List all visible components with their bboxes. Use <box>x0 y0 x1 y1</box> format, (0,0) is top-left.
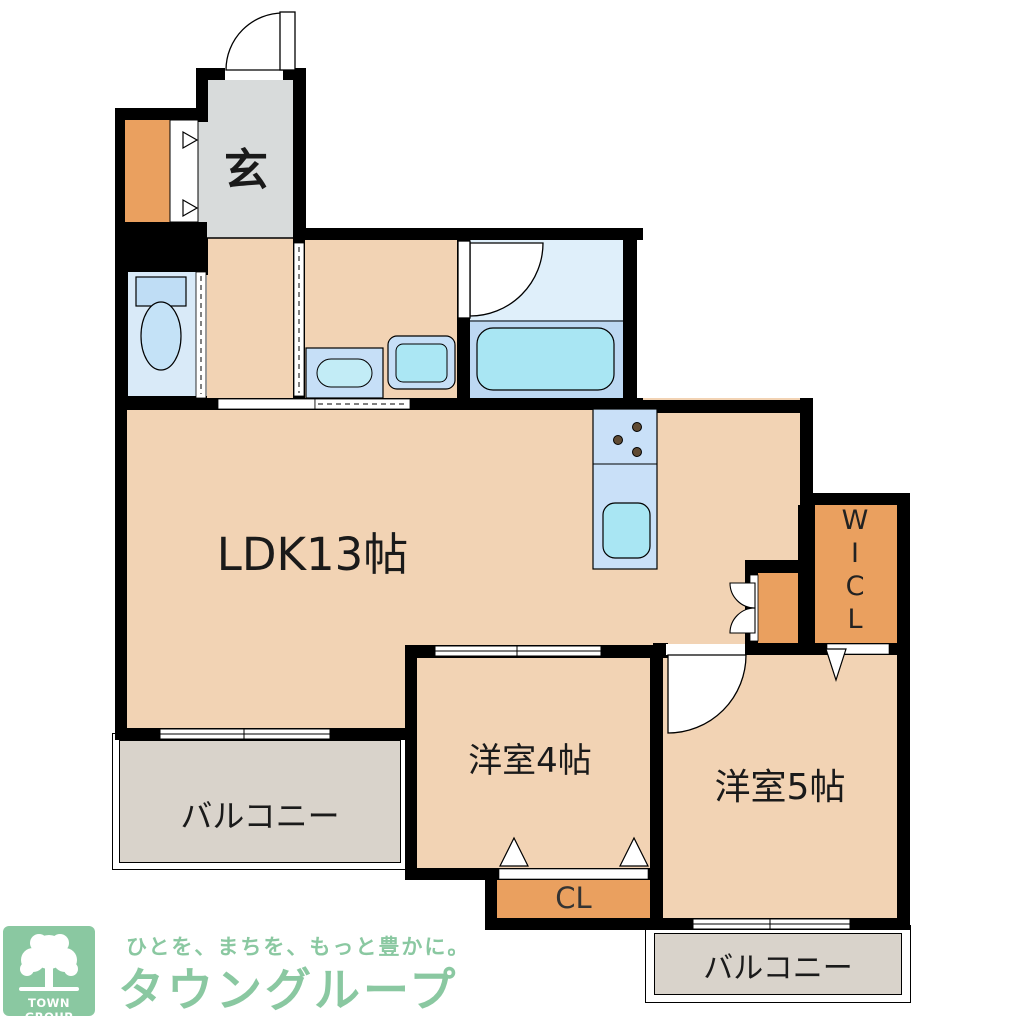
logo-text: TOWN GROUP <box>3 996 95 1020</box>
washroom-floor <box>305 240 457 400</box>
balcony-left-label: バルコニー <box>135 791 385 837</box>
wall <box>457 240 470 398</box>
wall <box>800 398 813 505</box>
bathtub-zone <box>470 320 623 398</box>
bathroom-floor <box>470 240 623 322</box>
wall <box>196 398 643 410</box>
wicl-letter: I <box>851 537 859 570</box>
wall <box>196 68 306 80</box>
room4-label: 洋室4帖 <box>430 733 630 782</box>
shoe-closet-floor <box>125 120 170 231</box>
floorplan: 玄 LDK13帖 洋室4帖 洋室5帖 バルコニー バルコニー CL W I C … <box>0 0 1020 1020</box>
wall <box>897 493 910 930</box>
wall <box>115 108 207 120</box>
entrance-door-leaf <box>280 12 295 70</box>
toilet-door <box>196 272 206 398</box>
wicl-letter: L <box>847 603 862 636</box>
wall <box>637 400 813 413</box>
wicl-letter: W <box>842 504 869 537</box>
room5-label: 洋室5帖 <box>665 758 895 810</box>
wicl-letter: C <box>846 570 865 603</box>
wicl-label: W I C L <box>838 504 872 636</box>
wall <box>293 228 643 240</box>
wall <box>115 396 127 740</box>
brand-name: タウングループ <box>118 954 458 1020</box>
wall <box>405 868 655 880</box>
cl-label: CL <box>497 881 650 915</box>
hallway-floor <box>207 238 293 400</box>
wall <box>115 250 128 400</box>
shoe-closet-opening <box>170 120 198 222</box>
door-direction-arrow <box>183 200 197 216</box>
wall <box>485 918 665 930</box>
wall <box>405 645 655 658</box>
entrance-door-arc <box>226 13 283 70</box>
wall <box>115 250 207 272</box>
entrance-label: 玄 <box>222 134 270 198</box>
town-group-logo: TOWN GROUP <box>3 926 95 1016</box>
wall <box>405 645 417 880</box>
wall <box>745 643 910 655</box>
wall <box>650 918 910 930</box>
wall <box>115 396 207 410</box>
wall <box>798 505 815 645</box>
wall <box>623 228 637 412</box>
ldk-label: LDK13帖 <box>205 518 420 583</box>
outside-cut <box>405 880 485 930</box>
door-direction-arrow <box>183 132 197 148</box>
wall <box>293 238 305 400</box>
wall <box>293 68 306 240</box>
wall <box>115 222 207 250</box>
wall <box>745 560 815 573</box>
balcony-bottom-label: バルコニー <box>658 943 898 987</box>
wall <box>196 238 208 275</box>
toilet-room-floor <box>128 272 196 397</box>
wall <box>115 728 417 740</box>
